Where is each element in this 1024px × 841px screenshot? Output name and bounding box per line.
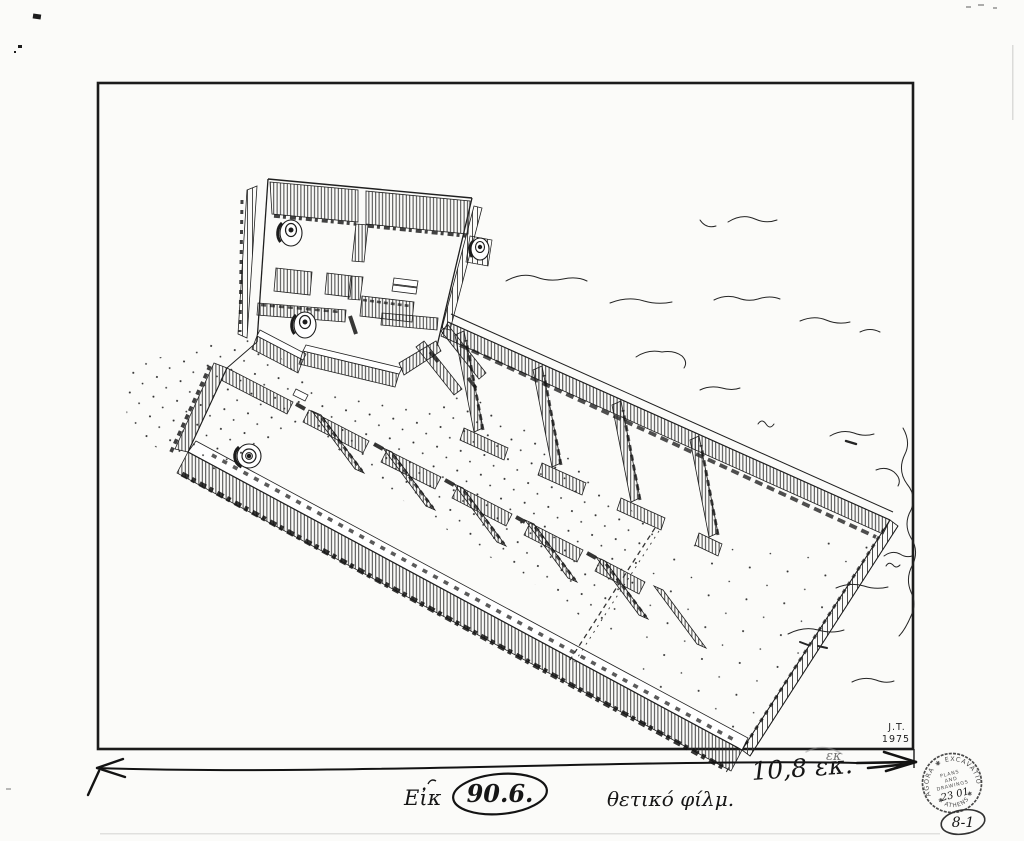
breathing-mark: [428, 780, 436, 784]
scale-ghost-text: εκ: [826, 749, 842, 764]
annotations: Εἰκ 90.6. θετικό φίλμ. 10,8 εκ. εκ: [403, 749, 854, 818]
signature: J.T. 1975: [882, 722, 910, 745]
well-icon: [278, 220, 302, 246]
figure-number: 90.6.: [467, 779, 534, 808]
ground-textures: [126, 332, 875, 742]
axonometric-excavation-drawing: J.T. 1975 Εἰκ 90.6. θετικό φίλμ. 10,8 εκ…: [0, 0, 1024, 841]
well-icon: [292, 312, 316, 338]
figure-prefix: Εἰκ: [403, 786, 442, 810]
left-arrowhead: [88, 759, 125, 795]
well-icon: [466, 236, 492, 266]
scanned-drawing-page: J.T. 1975 Εἰκ 90.6. θετικό φίλμ. 10,8 εκ…: [0, 0, 1024, 841]
signature-initials: J.T.: [887, 722, 906, 733]
signature-year: 1975: [882, 734, 910, 745]
note-greek: θετικό φίλμ.: [607, 787, 734, 811]
catalog-code-text: 8-1: [952, 815, 975, 831]
